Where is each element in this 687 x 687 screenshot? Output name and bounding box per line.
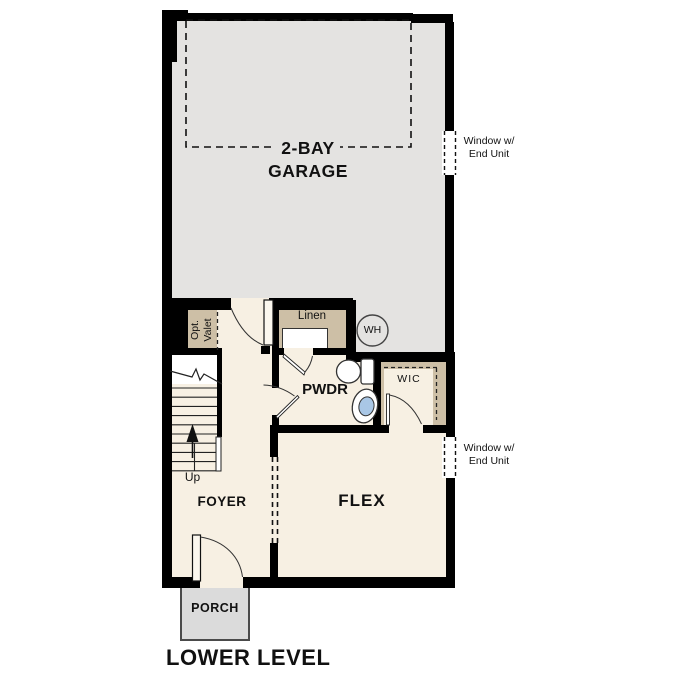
garage-label: 2-BAY GARAGE xyxy=(238,137,378,183)
window-lower-callout-line2: End Unit xyxy=(456,455,522,468)
opt-valet-label-line1: Opt. xyxy=(189,309,202,351)
window-lower-callout: Window w/ End Unit xyxy=(456,442,522,467)
wall-nook-south xyxy=(346,352,455,362)
wall-flex-north xyxy=(270,425,455,433)
garage-door-opening xyxy=(231,298,269,310)
wall-linen-south-right xyxy=(313,348,353,355)
porch-label: PORCH xyxy=(182,601,248,615)
wall-right-mid xyxy=(445,175,454,352)
plan-title: LOWER LEVEL xyxy=(166,645,330,671)
wall-valet-block xyxy=(162,298,188,355)
wall-divider-stub-top xyxy=(270,425,278,457)
garage-label-line1: 2-BAY xyxy=(276,138,339,158)
wall-linen-east xyxy=(346,300,356,352)
window-lower-callout-line1: Window w/ xyxy=(456,442,522,455)
wic-door-opening xyxy=(389,425,423,433)
stair-landing xyxy=(172,354,217,384)
linen-door-opening xyxy=(284,348,313,355)
window-upper-callout: Window w/ End Unit xyxy=(456,135,522,160)
garage-label-line2: GARAGE xyxy=(263,161,353,181)
stairs-up-label: Up xyxy=(176,470,209,484)
wall-pwdr-east xyxy=(373,352,381,433)
wall-stairs-east xyxy=(217,348,222,437)
window-upper-callout-line1: Window w/ xyxy=(456,135,522,148)
foyer-label: FOYER xyxy=(186,494,258,509)
floor-plan: 2-BAY GARAGE Window w/ End Unit Window w… xyxy=(0,0,687,687)
wall-right-bottom xyxy=(446,478,455,588)
wall-vestibule-stub xyxy=(261,346,270,354)
linen-label: Linen xyxy=(276,310,348,322)
opt-valet-label: Opt. Valet xyxy=(189,309,215,351)
pwdr-label: PWDR xyxy=(288,381,362,398)
flex-label: FLEX xyxy=(324,491,400,511)
wall-right-upper xyxy=(445,22,454,132)
wall-left-nub xyxy=(172,20,177,62)
wall-pwdr-west-stub xyxy=(272,415,279,425)
wic-label: WIC xyxy=(384,373,434,385)
water-heater-label: WH xyxy=(357,324,388,336)
wall-linen-south-left xyxy=(272,348,284,355)
wall-top xyxy=(172,13,413,21)
wall-divider-stub-bottom xyxy=(270,543,278,577)
window-upper-callout-line2: End Unit xyxy=(456,148,522,161)
front-door-opening xyxy=(200,577,243,588)
opt-valet-label-line2: Valet xyxy=(202,309,215,351)
